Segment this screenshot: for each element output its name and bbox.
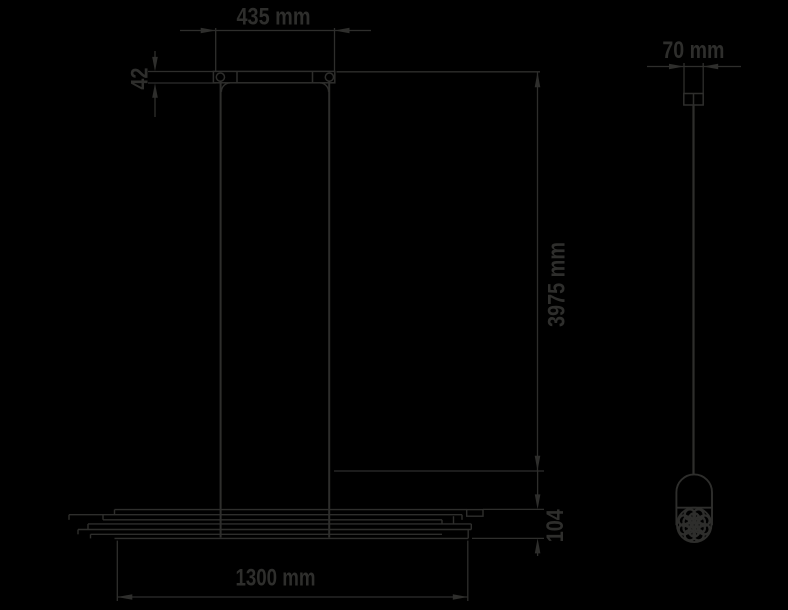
svg-text:70 mm: 70 mm (662, 37, 724, 64)
svg-text:42: 42 (127, 68, 154, 90)
svg-text:104: 104 (542, 509, 569, 543)
svg-text:435 mm: 435 mm (237, 4, 311, 31)
svg-text:1300 mm: 1300 mm (236, 565, 316, 592)
svg-text:3975 mm: 3975 mm (544, 242, 571, 327)
